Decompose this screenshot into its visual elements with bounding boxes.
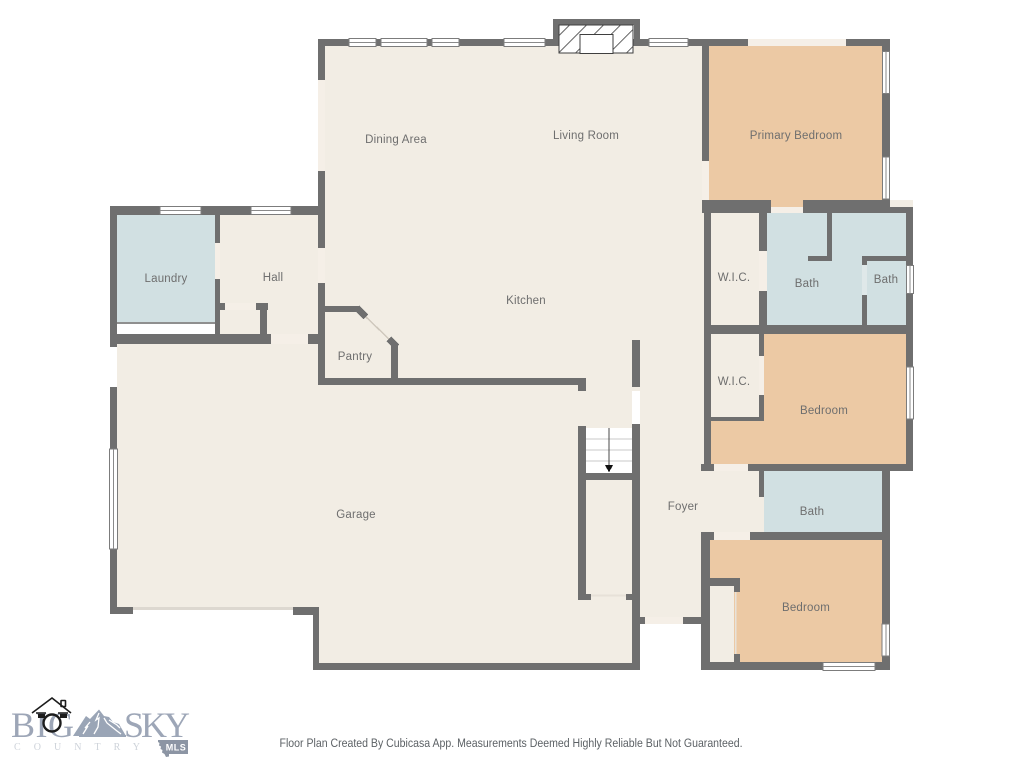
svg-text:Living Room: Living Room (553, 130, 619, 142)
svg-text:Pantry: Pantry (338, 351, 372, 363)
svg-text:Bedroom: Bedroom (800, 405, 848, 417)
svg-text:Hall: Hall (263, 272, 284, 284)
svg-text:BIG: BIG (11, 705, 74, 745)
svg-text:Primary Bedroom: Primary Bedroom (750, 130, 842, 142)
svg-text:SKY: SKY (124, 705, 190, 745)
svg-text:Bath: Bath (800, 506, 824, 518)
svg-text:Floor Plan Created By Cubicasa: Floor Plan Created By Cubicasa App. Meas… (280, 736, 743, 750)
svg-text:Foyer: Foyer (668, 501, 698, 513)
svg-text:Bedroom: Bedroom (782, 602, 830, 614)
svg-text:Laundry: Laundry (145, 273, 188, 285)
svg-text:Garage: Garage (336, 509, 376, 521)
svg-text:MLS: MLS (166, 743, 187, 753)
svg-text:Dining Area: Dining Area (365, 134, 427, 146)
svg-text:W.I.C.: W.I.C. (718, 272, 751, 284)
svg-text:Bath: Bath (795, 278, 819, 290)
svg-text:Kitchen: Kitchen (506, 295, 546, 307)
svg-text:W.I.C.: W.I.C. (718, 376, 751, 388)
svg-text:Bath: Bath (874, 274, 898, 286)
